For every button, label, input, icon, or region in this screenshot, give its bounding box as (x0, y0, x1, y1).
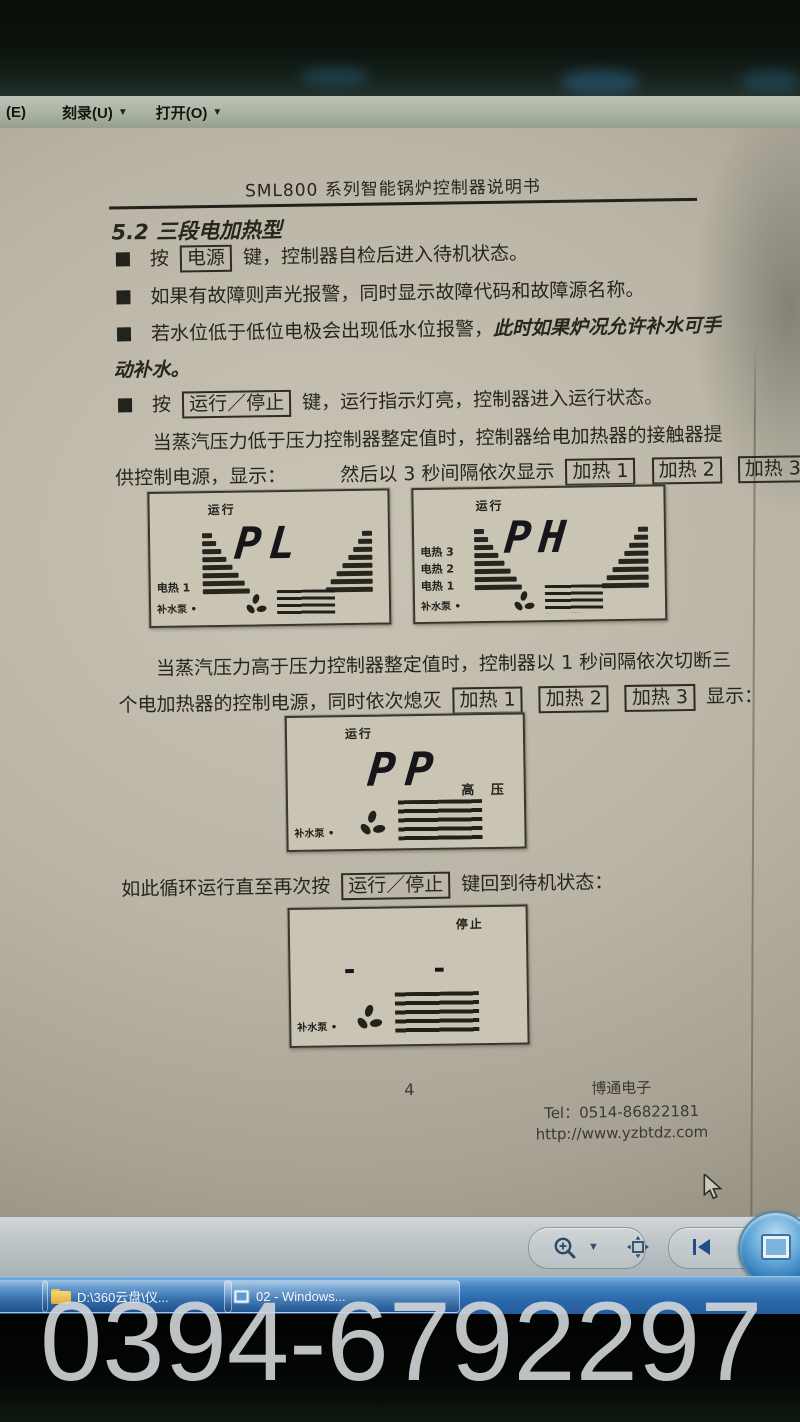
lcd-label-pump: 补水泵 • (421, 597, 461, 613)
screen-reflection (300, 66, 370, 88)
heat2-key-label: 加热 2 (651, 457, 722, 485)
monitor-top-band (0, 0, 800, 96)
menu-item-open[interactable]: 打开(O) ▼ (150, 102, 229, 123)
actual-size-icon[interactable] (626, 1235, 650, 1259)
lcd-display-stop: 停止 - - 补水泵 • (288, 904, 530, 1048)
screen-photo: (E) 刻录(U) ▼ 打开(O) ▼ SML800 系列智能锅炉控制器说明书 … (0, 0, 800, 1422)
loop-line: 如此循环运行直至再次按 运行／停止 键回到待机状态： (121, 867, 614, 903)
bullet-2: 如果有故障则声光报警，同时显示故障代码和故障源名称。 (150, 275, 644, 309)
footer-url: http://www.yzbtdz.com (512, 1122, 732, 1143)
lcd-label-heater3: 电热 3 (420, 543, 454, 559)
screen-reflection (740, 70, 800, 92)
slideshow-icon (760, 1233, 792, 1263)
menu-item-partial[interactable]: (E) (0, 104, 32, 121)
fan-icon (511, 589, 537, 615)
water-level-gauge-right (601, 527, 649, 589)
lcd-display-ph: 运行 PH 电热 3 电热 2 电热 1 补水泵 • (411, 484, 667, 624)
mouse-cursor-icon (702, 1174, 724, 1200)
paragraph-1-line1: 当蒸汽压力低于压力控制器整定值时，控制器给电加热器的接触器提 (152, 419, 722, 454)
heater-element-icon (395, 991, 480, 1034)
footer-company: 博通电子 (511, 1075, 731, 1099)
document-page: SML800 系列智能锅炉控制器说明书 5.2 三段电加热型 按 电源 键，控制… (0, 128, 800, 1216)
heat3-key-label: 加热 3 (625, 684, 696, 712)
heat3-key-label: 加热 3 (738, 455, 800, 483)
lcd-label-heater1: 电热 1 (157, 579, 191, 595)
menu-bar: (E) 刻录(U) ▼ 打开(O) ▼ (0, 96, 800, 129)
bullet-1: 按 电源 键，控制器自检后进入待机状态。 (150, 238, 529, 273)
lcd-status: 停止 (456, 915, 484, 932)
zoom-magnifier-icon[interactable] (552, 1235, 578, 1261)
lcd-status: 运行 (475, 497, 503, 514)
heat1-key-label: 加热 1 (565, 458, 636, 486)
heater-element-icon (398, 799, 483, 840)
bullet-marker (117, 327, 131, 341)
paragraph-2-line1: 当蒸汽压力高于压力控制器整定值时，控制器以 1 秒间隔依次切断三 (156, 645, 732, 681)
page-number: 4 (404, 1080, 414, 1099)
water-level-gauge-right (325, 531, 373, 593)
heat1-key-label: 加热 1 (452, 686, 523, 714)
lcd-label-pump: 补水泵 • (294, 824, 334, 840)
water-level-gauge-left (202, 533, 250, 595)
bullet-marker (116, 290, 130, 304)
bullet-marker (118, 398, 132, 412)
bullet-4: 按 运行／停止 键，运行指示灯亮，控制器进入运行状态。 (152, 382, 664, 419)
heat2-key-label: 加热 2 (539, 685, 610, 713)
lcd-status: 运行 (208, 501, 236, 518)
photo-viewer-canvas: SML800 系列智能锅炉控制器说明书 5.2 三段电加热型 按 电源 键，控制… (0, 128, 800, 1216)
heater-element-icon (545, 584, 603, 613)
bullet-3-line1: 若水位低于低位电极会出现低水位报警，此时如果炉况允许补水可手 (151, 310, 721, 345)
fan-icon (356, 808, 388, 840)
viewer-toolbar: ▼ (0, 1216, 800, 1277)
previous-button[interactable] (690, 1236, 714, 1258)
chevron-down-icon: ▼ (212, 107, 222, 118)
footer-tel: Tel：0514-86822181 (511, 1099, 731, 1123)
lcd-label-heater2: 电热 2 (420, 560, 454, 576)
lcd-label-high-pressure: 高 压 (461, 779, 510, 799)
bullet-marker (116, 252, 130, 266)
lcd-status: 运行 (345, 725, 373, 742)
heater-element-icon (277, 589, 335, 616)
lcd-display-pl: 运行 PL 电热 1 补水泵 • (147, 488, 391, 628)
watermark-phone-number: 0394-6792297 (40, 1277, 762, 1406)
lcd-display-pp: 运行 PP 高 压 补水泵 • (285, 712, 527, 852)
lcd-label-heater1: 电热 1 (421, 577, 455, 593)
bullet-3-line2: 动补水。 (113, 354, 189, 382)
lcd-label-pump: 补水泵 • (297, 1018, 337, 1034)
water-level-gauge-left (474, 528, 522, 590)
fan-icon (353, 1003, 385, 1035)
fan-icon (243, 592, 269, 618)
run-stop-key-label: 运行／停止 (341, 872, 450, 901)
chevron-down-icon: ▼ (118, 107, 128, 118)
menu-item-burn[interactable]: 刻录(U) ▼ (56, 102, 134, 123)
zoom-dropdown-caret[interactable]: ▼ (588, 1241, 599, 1253)
run-stop-key-label: 运行／停止 (182, 390, 291, 419)
lcd-label-pump: 补水泵 • (157, 600, 197, 616)
lcd-value: - - (290, 950, 526, 986)
power-key-label: 电源 (180, 245, 232, 273)
screen-reflection (560, 70, 640, 94)
